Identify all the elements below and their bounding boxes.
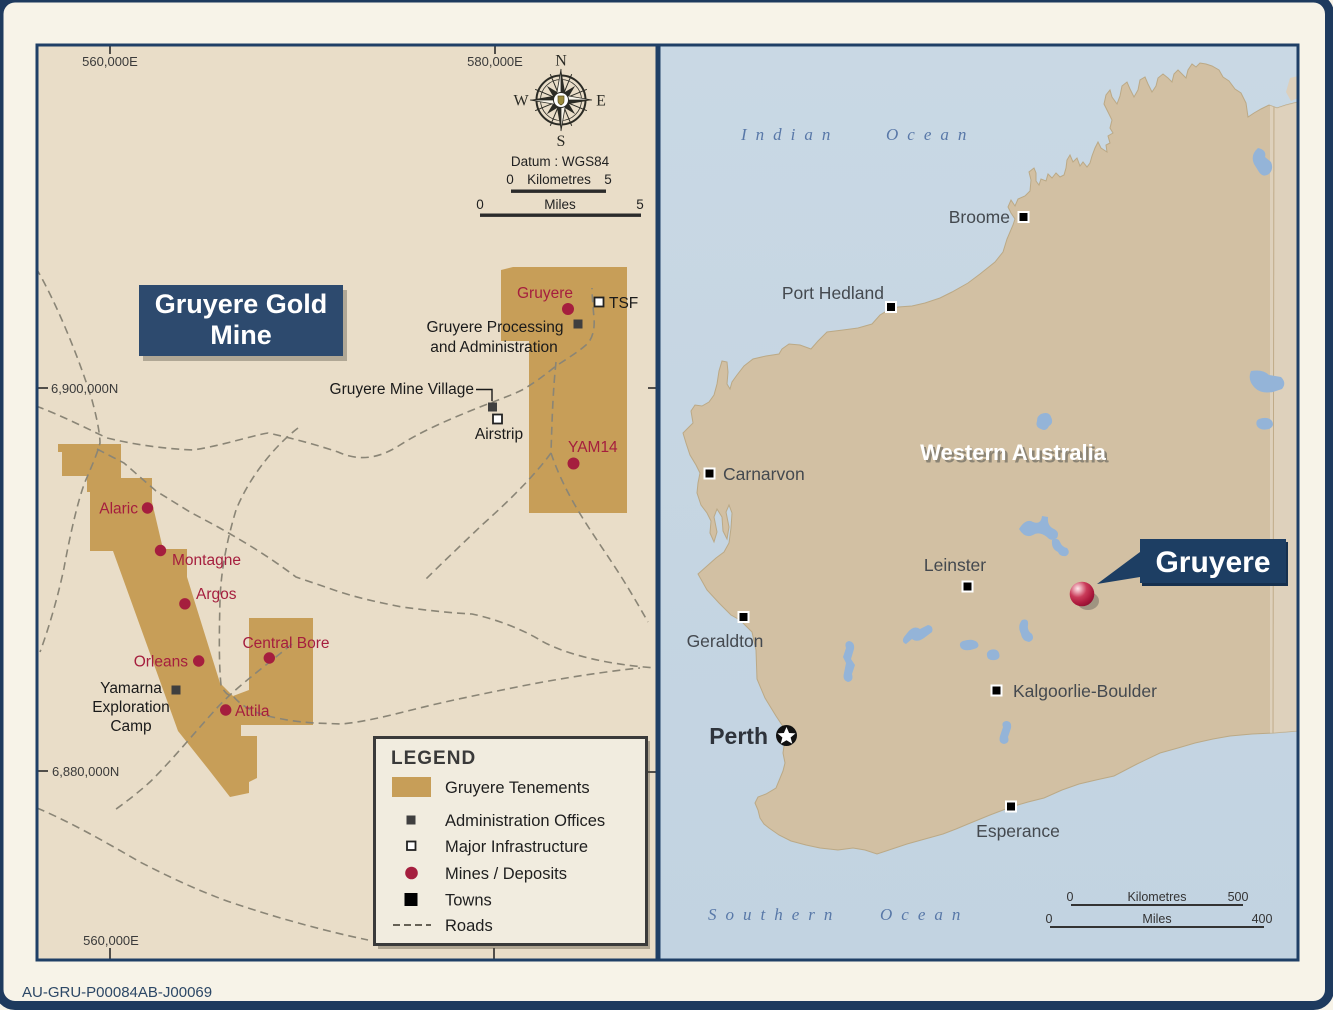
svg-text:W: W bbox=[513, 93, 529, 110]
svg-text:6,900,000N: 6,900,000N bbox=[51, 381, 118, 396]
svg-text:Gruyere Processing: Gruyere Processing bbox=[427, 319, 564, 336]
svg-text:Broome: Broome bbox=[949, 207, 1010, 227]
svg-text:Indian: Indian bbox=[740, 125, 839, 144]
svg-text:0: 0 bbox=[476, 197, 484, 212]
svg-text:Southern: Southern bbox=[708, 905, 841, 924]
svg-text:Orleans: Orleans bbox=[134, 654, 189, 671]
svg-text:Montagne: Montagne bbox=[172, 552, 241, 569]
svg-text:Leinster: Leinster bbox=[924, 555, 986, 575]
svg-text:E: E bbox=[596, 93, 606, 110]
svg-text:Esperance: Esperance bbox=[976, 821, 1060, 841]
svg-text:6,880,000N: 6,880,000N bbox=[52, 764, 119, 779]
svg-text:TSF: TSF bbox=[609, 295, 638, 312]
svg-text:Geraldton: Geraldton bbox=[687, 631, 764, 651]
svg-text:Gruyere: Gruyere bbox=[517, 285, 573, 302]
svg-text:560,000E: 560,000E bbox=[83, 933, 139, 948]
svg-text:Miles: Miles bbox=[544, 197, 576, 212]
svg-text:Ocean: Ocean bbox=[880, 905, 969, 924]
svg-text:Gruyere Mine Village: Gruyere Mine Village bbox=[330, 381, 474, 398]
svg-text:0: 0 bbox=[506, 172, 514, 187]
svg-text:Kilometres: Kilometres bbox=[1127, 890, 1186, 904]
svg-text:Towns: Towns bbox=[445, 892, 492, 910]
svg-text:Ocean: Ocean bbox=[886, 125, 975, 144]
svg-text:Alaric: Alaric bbox=[99, 501, 138, 518]
svg-text:0: 0 bbox=[1067, 890, 1074, 904]
svg-text:Airstrip: Airstrip bbox=[475, 426, 523, 443]
svg-text:580,000E: 580,000E bbox=[467, 54, 523, 69]
svg-text:S: S bbox=[557, 133, 566, 150]
svg-text:Yamarna: Yamarna bbox=[100, 680, 162, 697]
svg-text:Exploration: Exploration bbox=[92, 699, 170, 716]
svg-text:Carnarvon: Carnarvon bbox=[723, 464, 805, 484]
svg-text:YAM14: YAM14 bbox=[568, 439, 618, 456]
svg-text:5: 5 bbox=[604, 172, 612, 187]
svg-text:LEGEND: LEGEND bbox=[391, 748, 476, 769]
svg-text:Datum : WGS84: Datum : WGS84 bbox=[511, 154, 610, 169]
svg-text:560,000E: 560,000E bbox=[82, 54, 138, 69]
svg-text:Mine: Mine bbox=[210, 320, 272, 350]
svg-text:500: 500 bbox=[1228, 890, 1249, 904]
svg-text:AU-GRU-P00084AB-J00069: AU-GRU-P00084AB-J00069 bbox=[22, 984, 212, 1001]
svg-text:400: 400 bbox=[1252, 912, 1273, 926]
svg-text:Perth: Perth bbox=[709, 723, 768, 749]
svg-text:and Administration: and Administration bbox=[430, 339, 558, 356]
svg-text:Attila: Attila bbox=[235, 703, 270, 720]
svg-text:Camp: Camp bbox=[110, 718, 151, 735]
svg-text:N: N bbox=[555, 53, 567, 70]
svg-text:Gruyere Gold: Gruyere Gold bbox=[155, 289, 328, 319]
svg-text:Mines / Deposits: Mines / Deposits bbox=[445, 865, 567, 883]
svg-text:Major Infrastructure: Major Infrastructure bbox=[445, 838, 588, 856]
svg-text:Kilometres: Kilometres bbox=[527, 172, 591, 187]
svg-text:Roads: Roads bbox=[445, 917, 493, 935]
svg-text:Kalgoorlie-Boulder: Kalgoorlie-Boulder bbox=[1013, 681, 1157, 701]
svg-text:0: 0 bbox=[1046, 912, 1053, 926]
svg-text:Western Australia: Western Australia bbox=[920, 440, 1107, 465]
svg-text:Port Hedland: Port Hedland bbox=[782, 283, 884, 303]
svg-text:Administration Offices: Administration Offices bbox=[445, 812, 605, 830]
svg-text:Argos: Argos bbox=[196, 586, 237, 603]
svg-text:Central Bore: Central Bore bbox=[242, 635, 329, 652]
svg-text:5: 5 bbox=[636, 197, 644, 212]
svg-text:Miles: Miles bbox=[1142, 912, 1171, 926]
svg-text:Gruyere: Gruyere bbox=[1155, 546, 1270, 579]
svg-text:Gruyere Tenements: Gruyere Tenements bbox=[445, 779, 590, 797]
